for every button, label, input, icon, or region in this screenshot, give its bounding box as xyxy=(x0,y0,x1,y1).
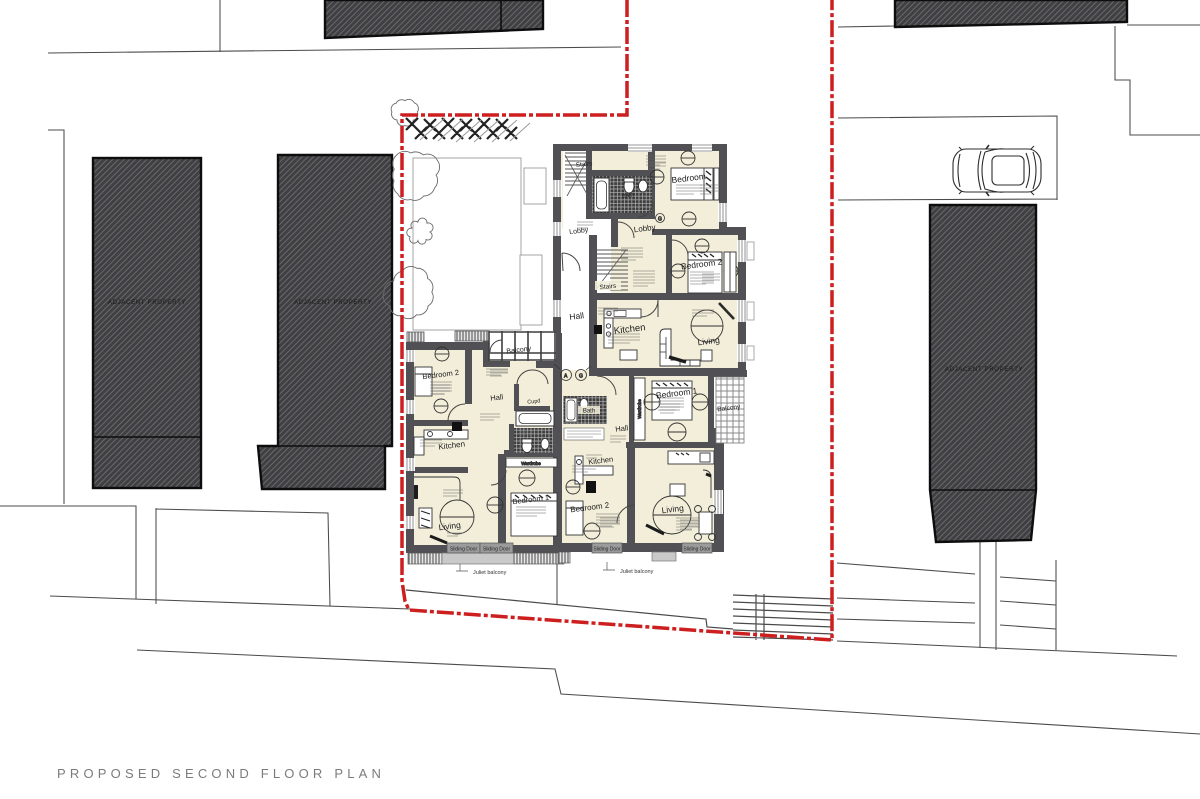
svg-text:ADJACENT PROPERTY: ADJACENT PROPERTY xyxy=(108,299,186,306)
svg-text:Juliet balcony: Juliet balcony xyxy=(620,569,654,575)
svg-text:Hall: Hall xyxy=(615,423,629,434)
svg-text:Sliding Door: Sliding Door xyxy=(593,547,621,553)
svg-text:Hall: Hall xyxy=(490,392,504,403)
svg-text:Wardrobe: Wardrobe xyxy=(637,399,642,419)
svg-text:G: G xyxy=(658,217,662,223)
svg-text:Sliding Door: Sliding Door xyxy=(683,547,711,553)
svg-text:Sliding Door: Sliding Door xyxy=(483,547,511,553)
svg-text:PROPOSED SECOND FLOOR PLAN: PROPOSED SECOND FLOOR PLAN xyxy=(57,766,385,781)
svg-text:Bath: Bath xyxy=(583,409,595,415)
svg-text:Wardrobe: Wardrobe xyxy=(521,461,541,466)
svg-text:ADJACENT PROPERTY: ADJACENT PROPERTY xyxy=(945,366,1023,373)
svg-text:G: G xyxy=(579,374,583,380)
svg-text:ADJACENT PROPERTY: ADJACENT PROPERTY xyxy=(294,299,372,306)
svg-text:Juliet balcony: Juliet balcony xyxy=(473,570,507,576)
svg-text:Hall: Hall xyxy=(569,310,585,322)
svg-text:Sliding Door: Sliding Door xyxy=(450,547,478,553)
